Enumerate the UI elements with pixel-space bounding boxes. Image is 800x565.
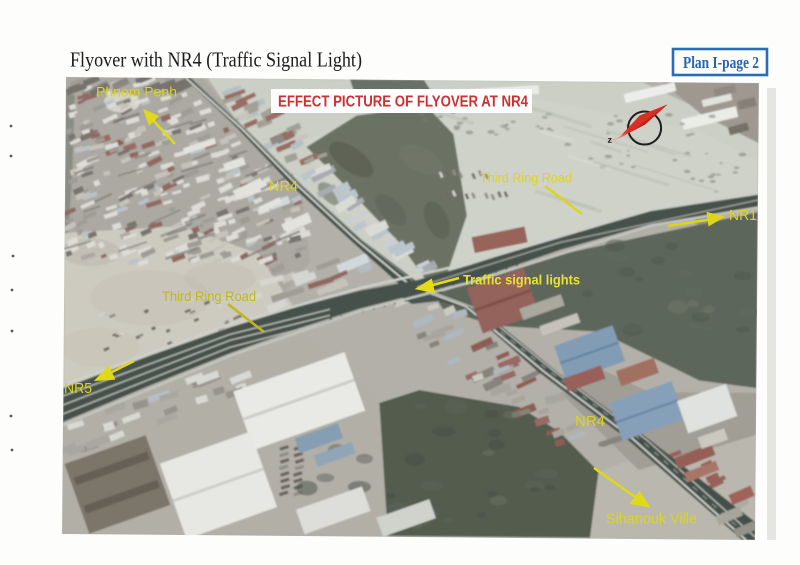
svg-text:z: z bbox=[607, 135, 612, 145]
svg-text:NR5: NR5 bbox=[64, 380, 92, 397]
svg-text:NR4: NR4 bbox=[269, 178, 298, 195]
svg-text:Third Ring Road: Third Ring Road bbox=[480, 170, 572, 186]
svg-text:NR1: NR1 bbox=[729, 207, 757, 224]
svg-text:Plan I-page 2: Plan I-page 2 bbox=[683, 53, 759, 72]
svg-text:Phnom Penh: Phnom Penh bbox=[96, 84, 177, 100]
svg-text:NR4: NR4 bbox=[575, 413, 605, 430]
svg-text:EFFECT PICTURE OF FLYOVER AT N: EFFECT PICTURE OF FLYOVER AT NR4 bbox=[278, 94, 528, 111]
svg-text:Flyover with NR4 (Traffic Sign: Flyover with NR4 (Traffic Signal Light) bbox=[70, 48, 362, 72]
svg-text:Third Ring Road: Third Ring Road bbox=[162, 288, 256, 304]
svg-text:Traffic signal lights: Traffic signal lights bbox=[463, 272, 580, 288]
svg-text:Sihanouk Ville: Sihanouk Ville bbox=[606, 512, 697, 528]
